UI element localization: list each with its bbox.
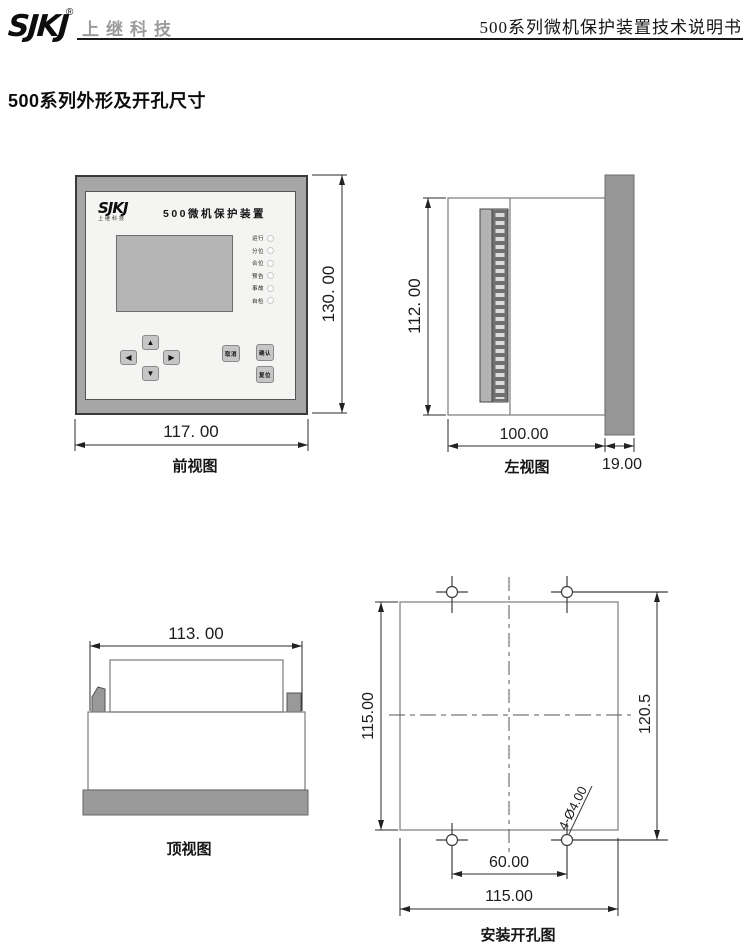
left-view-body xyxy=(448,198,605,415)
install-cutout-drawing: 115.00 120.5 60.00 115.00 4-Ø4.00 xyxy=(360,576,668,916)
hole-spacing-h-dim: 60.00 xyxy=(489,854,529,871)
top-width-dim: 113. 00 xyxy=(168,624,223,643)
left-height-dim: 112. 00 xyxy=(405,278,424,333)
top-view-drawing: 113. 00 xyxy=(83,624,308,815)
technical-drawing-canvas: 117. 00 130. 00 112. 00 100.00 xyxy=(0,0,750,950)
mounting-hole-icon xyxy=(562,587,573,598)
mounting-hole-icon xyxy=(447,587,458,598)
front-width-dim: 117. 00 xyxy=(163,422,218,441)
bezel-depth-dim: 19.00 xyxy=(602,456,642,473)
front-view-dimensions: 117. 00 130. 00 xyxy=(75,175,347,451)
top-view-case xyxy=(88,712,305,790)
cutout-width-dim: 115.00 xyxy=(485,888,533,905)
mounting-hole-icon xyxy=(562,835,573,846)
hole-diameter-note: 4-Ø4.00 xyxy=(555,784,590,833)
mounting-hole-icon xyxy=(447,835,458,846)
manual-page: SJKJ ® 上继科技 500系列微机保护装置技术说明书 500系列外形及开孔尺… xyxy=(0,0,750,950)
left-view-caption: 左视图 xyxy=(477,456,577,477)
cutout-height-dim: 115.00 xyxy=(360,692,377,740)
left-view-drawing xyxy=(448,175,634,435)
left-view-front-bezel xyxy=(605,175,634,435)
mounting-holes xyxy=(436,576,668,879)
mounting-clip-right xyxy=(287,693,301,712)
top-view-rear-body xyxy=(110,660,283,712)
front-height-dim: 130. 00 xyxy=(319,266,338,323)
mounting-clip-left xyxy=(92,687,105,712)
front-view-caption: 前视图 xyxy=(145,455,245,476)
hole-spacing-v-dim: 120.5 xyxy=(637,694,654,734)
top-view-front-bezel xyxy=(83,790,308,815)
top-view-caption: 顶视图 xyxy=(139,838,239,859)
install-view-caption: 安装开孔图 xyxy=(458,924,578,945)
left-depth-dim: 100.00 xyxy=(500,426,549,443)
